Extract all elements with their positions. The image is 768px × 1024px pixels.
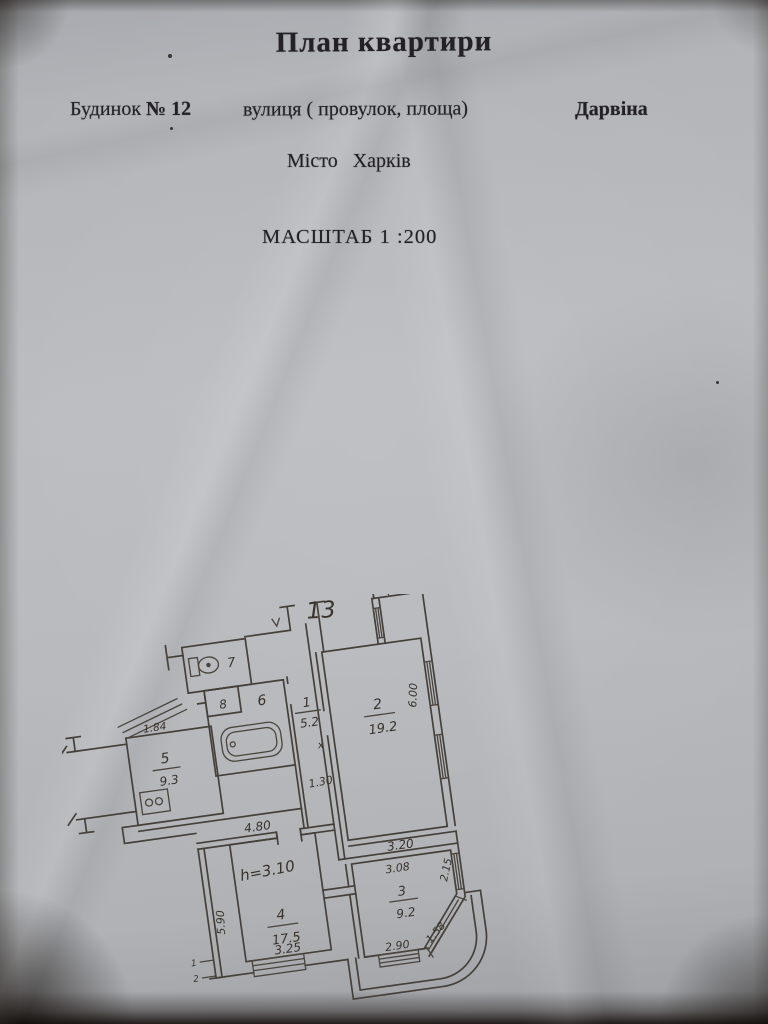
toilet-icon [188,655,219,677]
room3-number-label: 3 [397,884,407,900]
room7-number-label: 7 [226,655,237,671]
dim-room2-side-label: 6.00 [406,683,420,708]
dim-room4-side-label: 5.90 [214,910,228,935]
room4-number-label: 4 [275,907,286,924]
scale-line: МАСШТАБ 1 :200 [262,226,437,249]
page-title: План квартири [0,23,768,61]
vent-mark-icon [272,618,281,627]
section-mark-1: 1 [190,959,197,970]
paper-speck [716,381,719,384]
street-label: вулиця ( провулок, площа) [243,97,468,121]
stove-icon [140,789,171,815]
door-x-mark: x [316,740,324,752]
height-note-label: h=3.10 [238,857,296,885]
building-number: № 12 [146,98,191,121]
room8-number-label: 8 [218,697,228,712]
street-name: Дарвіна [575,98,648,121]
vent-mark-icon [383,594,392,595]
room5-number-label: 5 [160,750,171,767]
room5-area-label: 9.3 [159,772,180,789]
room2-area-label: 19.2 [368,719,399,738]
building-label: Будинок [70,98,141,121]
dim-room3-top-label: 3.08 [385,860,411,876]
room3-area-label: 9.2 [395,905,416,922]
paper-speck [170,127,173,130]
photo-of-document: План квартири Будинок № 12 вулиця ( пров… [0,0,768,1024]
dim-room3-side-label: 2.15 [438,857,455,883]
bathtub-icon [220,721,284,763]
dim-room2-bottom-label: 3.20 [386,836,415,854]
apartment-number-label: 13 [306,597,337,624]
room1-area-label: 5.2 [299,714,320,731]
room2-number-label: 2 [372,696,383,713]
balcony-parapet [349,896,482,990]
floor-plan: 13 7 8 6 1 5.2 x 1.30 5 9.3 1.84 4.80 2 … [62,594,498,1024]
section-mark-2: 2 [193,974,200,985]
room6-number-label: 6 [256,692,267,709]
dim-hall-width-label: 1.30 [307,773,334,790]
walls [62,594,493,1024]
room1-number-label: 1 [302,695,312,711]
city-line: Місто Харків [287,150,411,173]
